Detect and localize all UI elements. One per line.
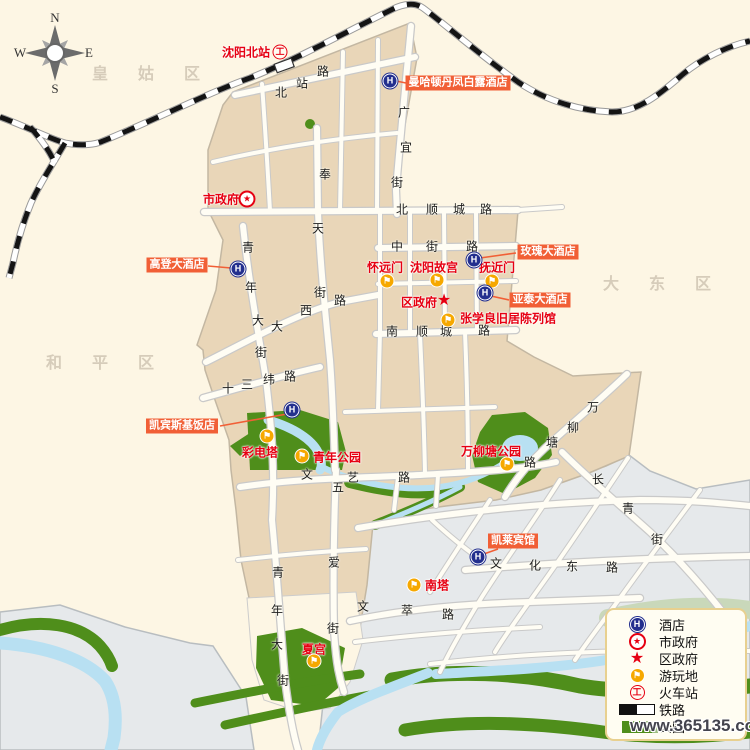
legend-icon-cell: ★ — [615, 633, 659, 650]
road-label: 路 — [284, 368, 296, 385]
legend-row: H酒店 — [615, 616, 737, 633]
hotel-marker: H — [467, 253, 482, 268]
train-station-icon: 工 — [273, 45, 288, 60]
district-gov-icon: ★ — [630, 651, 644, 667]
road-label: 十 — [222, 380, 234, 397]
hotel-chip: 亚泰大酒店 — [510, 293, 571, 308]
attraction-marker: ⚑ — [260, 429, 275, 444]
attraction-marker: ⚑ — [307, 654, 322, 669]
compass-letter: S — [51, 81, 58, 97]
road-label: 化 — [529, 557, 541, 574]
road-label: 东 — [566, 558, 578, 575]
compass-letter: W — [14, 45, 26, 61]
legend-row: ★区政府 — [615, 650, 737, 667]
road-label: 街 — [651, 531, 663, 548]
attraction-icon: ⚑ — [441, 313, 456, 328]
road-label: 大 — [252, 312, 264, 329]
hotel-chip: 高登大酒店 — [147, 258, 208, 273]
compass-letter: E — [85, 45, 93, 61]
road-label: 三 — [241, 376, 253, 393]
hotel-icon: H — [471, 550, 486, 565]
road-label: 南 — [386, 323, 398, 340]
train-station-icon: 工 — [630, 685, 645, 700]
district-gov-icon: ★ — [437, 292, 451, 309]
city-gov-icon: ★ — [629, 633, 646, 650]
attraction-icon: ⚑ — [430, 273, 445, 288]
hotel-icon: H — [630, 617, 645, 632]
city-map: NSWE皇姑区大东区和平区北站路广宜街奉天街北顺城路中街路南顺城路青年大街大西路… — [0, 0, 750, 750]
road-label: 文 — [490, 555, 502, 572]
road-label: 街 — [327, 620, 339, 637]
road-label: 青 — [242, 239, 254, 256]
road-label: 路 — [442, 606, 454, 623]
hotel-marker: H — [285, 403, 300, 418]
hotel-marker: H — [478, 286, 493, 301]
station-label: 沈阳北站 — [222, 44, 270, 61]
attraction-icon: ⚑ — [260, 429, 275, 444]
road-label: 萃 — [401, 602, 413, 619]
road-label: 五 — [332, 479, 344, 496]
attraction-icon: ⚑ — [407, 578, 422, 593]
hotel-icon: H — [383, 74, 398, 89]
attraction-icon: ⚑ — [500, 457, 515, 472]
road-label: 大 — [271, 318, 283, 335]
road-label: 顺 — [426, 201, 438, 218]
road-label: 年 — [245, 279, 257, 296]
district-label: 皇姑区 — [62, 60, 230, 84]
railway-icon — [619, 704, 655, 715]
legend-icon-cell: ★ — [615, 651, 659, 667]
city-gov-marker: ★ — [239, 191, 256, 208]
hotel-chip: 玫瑰大酒店 — [518, 245, 579, 260]
road-label: 路 — [334, 292, 346, 309]
road-label: 年 — [271, 602, 283, 619]
district-label: 大东区 — [573, 270, 741, 294]
road-label: 青 — [272, 564, 284, 581]
road-label: 北 — [396, 201, 408, 218]
legend-row: ⚑游玩地 — [615, 667, 737, 684]
road-label: 路 — [317, 63, 329, 80]
road-label: 北 — [275, 84, 287, 101]
attraction-marker: ⚑ — [295, 449, 310, 464]
attraction-icon: ⚑ — [380, 274, 395, 289]
road-label: 爱 — [328, 554, 340, 571]
road-label: 街 — [391, 174, 403, 191]
road-label: 文 — [357, 598, 369, 615]
road-label: 长 — [592, 471, 604, 488]
road-label: 大 — [271, 636, 283, 653]
legend-icon-cell: ⚑ — [615, 668, 659, 683]
road-label: 艺 — [347, 469, 359, 486]
attraction-marker: ⚑ — [407, 578, 422, 593]
road-label: 街 — [277, 672, 289, 689]
attraction-icon: ⚑ — [307, 654, 322, 669]
road-label: 西 — [300, 302, 312, 319]
attraction-icon: ⚑ — [630, 668, 645, 683]
hotel-marker: H — [471, 550, 486, 565]
road-label: 纬 — [263, 371, 275, 388]
road-label: 柳 — [567, 419, 579, 436]
road-label: 路 — [480, 201, 492, 218]
attraction-label: 青年公园 — [313, 449, 361, 466]
hotel-icon: H — [285, 403, 300, 418]
legend-row: 工火车站 — [615, 684, 737, 701]
hotel-chip: 曼哈顿丹凤白露酒店 — [406, 76, 511, 91]
watermark: www.365135.com — [630, 716, 750, 736]
attraction-marker: ⚑ — [430, 273, 445, 288]
road-label: 万 — [587, 399, 599, 416]
attraction-label: 张学良旧居陈列馆 — [460, 310, 556, 327]
road-label: 街 — [426, 238, 438, 255]
road-label: 天 — [312, 220, 324, 237]
legend-row: ★市政府 — [615, 633, 737, 650]
hotel-icon: H — [478, 286, 493, 301]
road-label: 奉 — [319, 166, 331, 183]
attraction-label: 南塔 — [425, 577, 449, 594]
road-label: 广 — [398, 104, 410, 121]
road-label: 街 — [255, 344, 267, 361]
attraction-label: 彩电塔 — [242, 444, 278, 461]
hotel-marker: H — [383, 74, 398, 89]
road-label: 中 — [391, 238, 403, 255]
legend-icon-cell: H — [615, 617, 659, 632]
road-label: 街 — [314, 284, 326, 301]
road-label: 路 — [398, 469, 410, 486]
city-gov-icon: ★ — [239, 191, 256, 208]
district-gov-marker: ★ — [437, 292, 451, 310]
hotel-chip: 凯莱宾馆 — [488, 534, 538, 549]
road-label: 站 — [296, 75, 308, 92]
legend-icon-cell — [615, 704, 659, 715]
road-label: 顺 — [416, 323, 428, 340]
road-label: 文 — [301, 466, 313, 483]
compass-letter: N — [50, 10, 59, 26]
road-label: 青 — [622, 500, 634, 517]
road-label: 城 — [453, 201, 465, 218]
road-label: 路 — [606, 559, 618, 576]
hotel-icon: H — [231, 262, 246, 277]
attraction-marker: ⚑ — [500, 457, 515, 472]
city-gov-label: 市政府 — [203, 191, 239, 208]
road-label: 塘 — [546, 434, 558, 451]
road-label: 路 — [524, 454, 536, 471]
attraction-icon: ⚑ — [295, 449, 310, 464]
district-gov-label: 区政府 — [401, 294, 437, 311]
attraction-marker: ⚑ — [441, 313, 456, 328]
hotel-chip: 凯宾斯基饭店 — [146, 419, 218, 434]
road-label: 宜 — [400, 139, 412, 156]
train-station-marker: 工 — [273, 45, 288, 60]
hotel-icon: H — [467, 253, 482, 268]
hotel-marker: H — [231, 262, 246, 277]
legend-icon-cell: 工 — [615, 685, 659, 700]
district-label: 和平区 — [16, 349, 184, 373]
attraction-marker: ⚑ — [380, 274, 395, 289]
